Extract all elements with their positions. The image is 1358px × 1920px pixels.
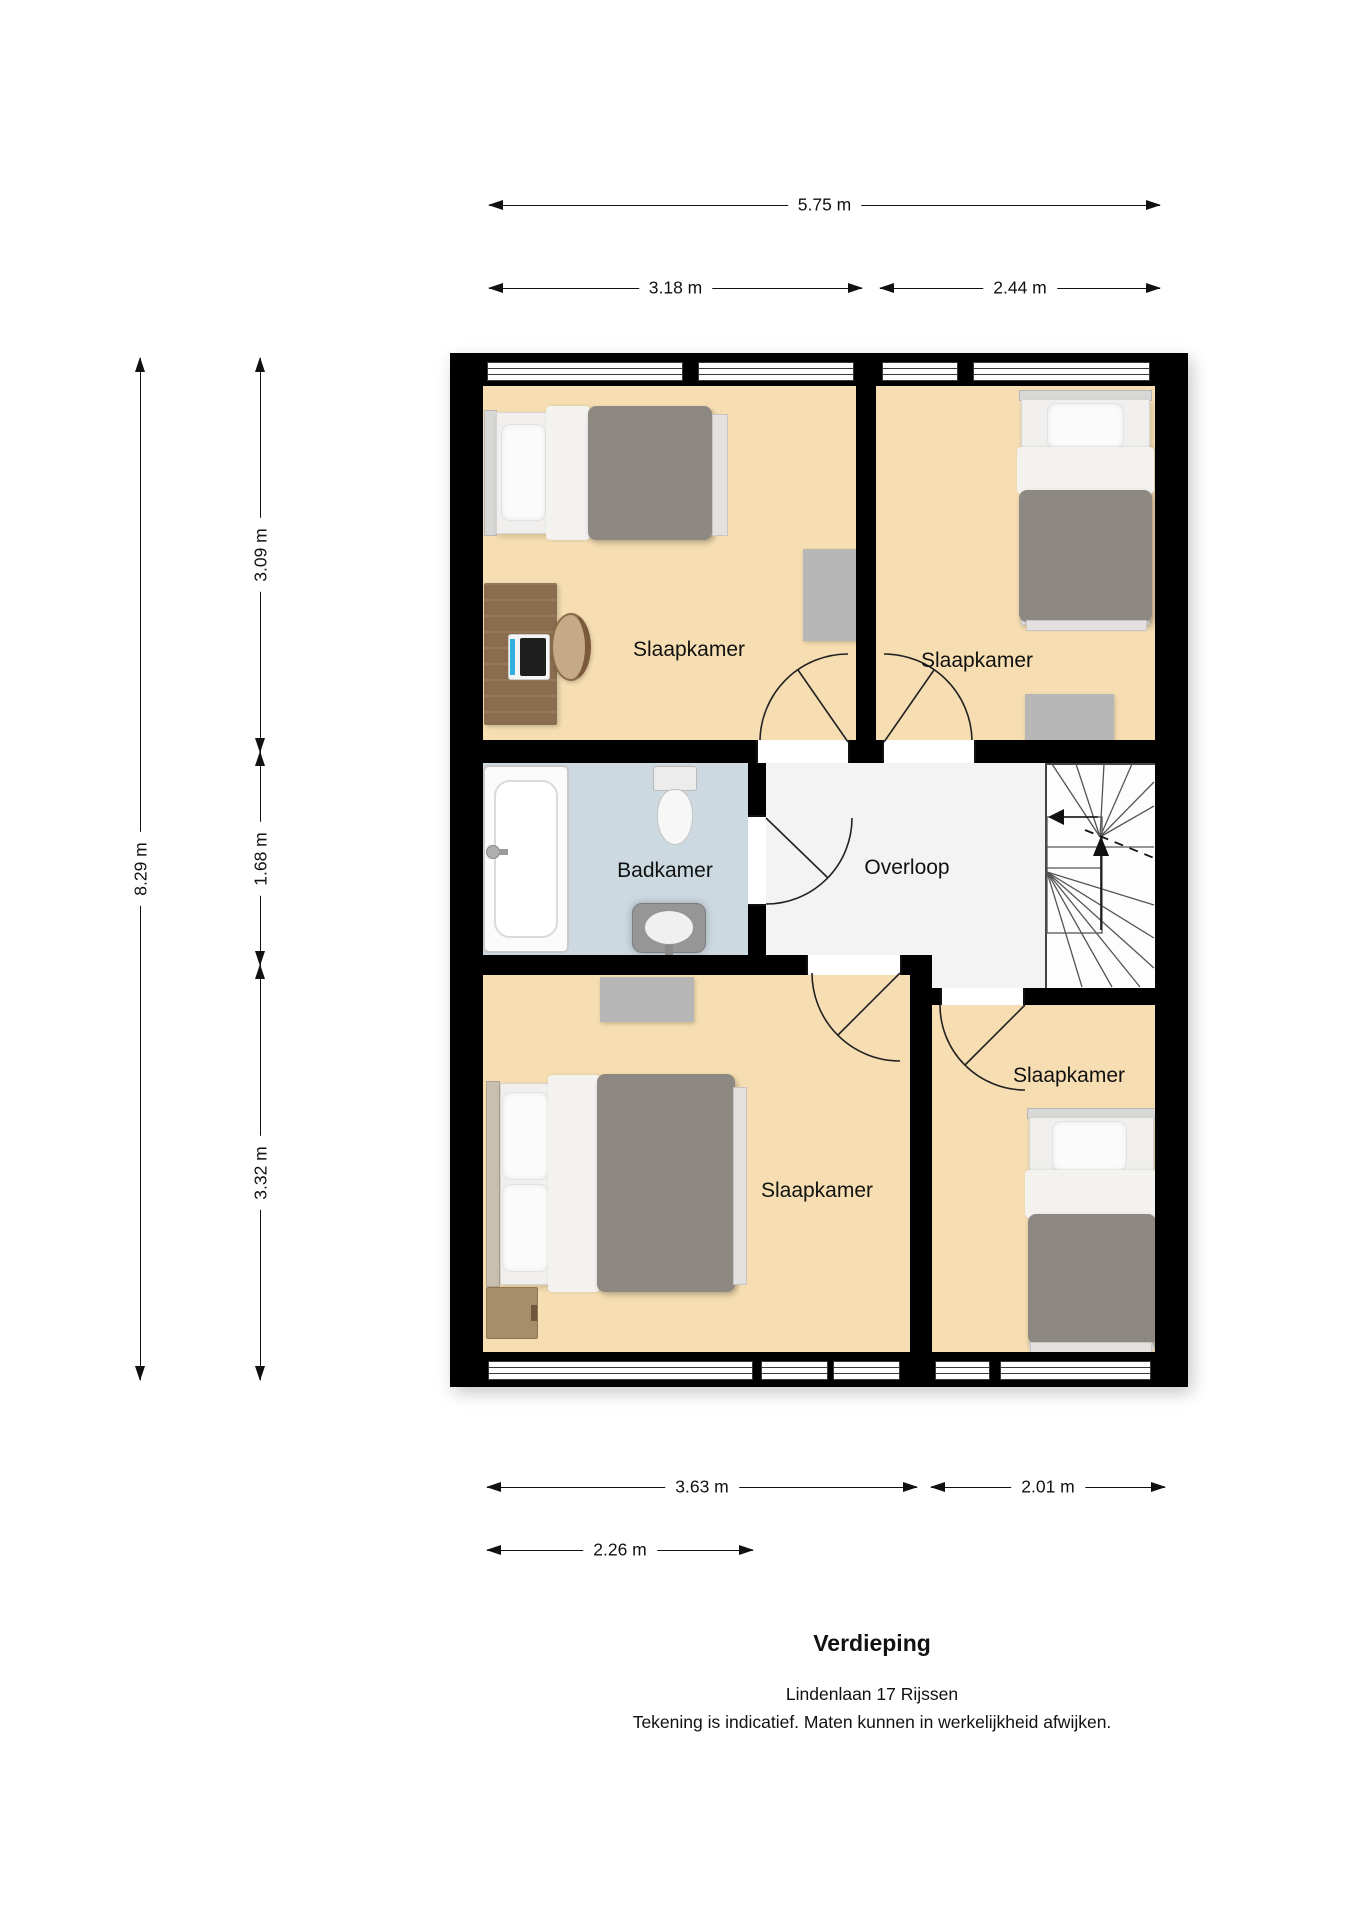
dimension-bottom-right: 2.01 m (931, 1487, 1165, 1488)
dimension-left-bottom: 3.32 m (260, 965, 261, 1380)
door-leaf-bedroom-bottom-right (965, 1005, 1025, 1065)
room-label-landing: Overloop (864, 856, 949, 880)
disclaimer-line: Tekening is indicatief. Maten kunnen in … (633, 1712, 1112, 1733)
room-label-bedroom-bottom-right: Slaapkamer (1013, 1064, 1125, 1088)
room-label-bedroom-top-right: Slaapkamer (921, 649, 1033, 673)
dimension-label: 8.29 m (131, 832, 152, 906)
dimension-bottom-left: 3.63 m (487, 1487, 917, 1488)
dimension-label: 3.18 m (639, 278, 713, 299)
floorplan-page: Slaapkamer Slaapkamer Badkamer Overloop … (0, 0, 1358, 1920)
door-leaf-bedroom-top-right (884, 670, 934, 742)
room-label-bedroom-top-left: Slaapkamer (633, 638, 745, 662)
dimension-left-middle: 1.68 m (260, 752, 261, 965)
dimension-top-left: 3.18 m (489, 288, 862, 289)
door-leaf-bathroom (766, 818, 828, 878)
dimension-label: 2.44 m (983, 278, 1057, 299)
dimension-top-total: 5.75 m (489, 205, 1160, 206)
door-leaf-bedroom-top-left (798, 670, 848, 742)
door-arc-bedroom-top-left (760, 654, 848, 740)
dimension-label: 1.68 m (251, 822, 272, 896)
dimension-top-right: 2.44 m (880, 288, 1160, 289)
room-label-bathroom: Badkamer (617, 859, 713, 883)
dimension-bottom-inner: 2.26 m (487, 1550, 753, 1551)
dimension-label: 3.32 m (251, 1136, 272, 1210)
page-title: Verdieping (813, 1630, 931, 1657)
door-leaf-bedroom-bottom-left (838, 973, 900, 1035)
dimension-label: 2.01 m (1011, 1477, 1085, 1498)
dimension-left-total: 8.29 m (140, 358, 141, 1380)
dimension-label: 5.75 m (788, 195, 862, 216)
address-line: Lindenlaan 17 Rijssen (786, 1684, 958, 1705)
dimension-left-top: 3.09 m (260, 358, 261, 752)
dimension-label: 3.63 m (665, 1477, 739, 1498)
dimension-label: 3.09 m (251, 518, 272, 592)
dimension-label: 2.26 m (583, 1540, 657, 1561)
room-label-bedroom-bottom-left: Slaapkamer (761, 1179, 873, 1203)
